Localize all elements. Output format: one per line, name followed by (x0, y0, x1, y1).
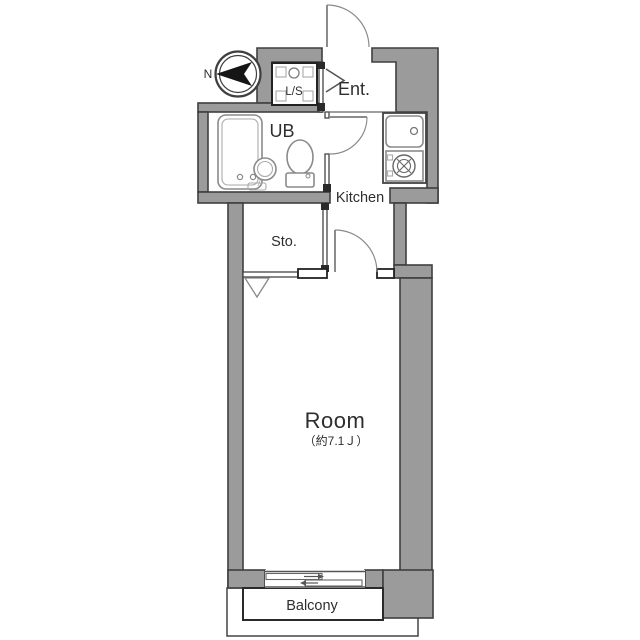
sliding-window-icon (265, 570, 365, 588)
bath-door-arc-icon (330, 117, 367, 154)
stove-icon (386, 151, 423, 181)
compass-north-icon: N (204, 52, 261, 97)
room-label: Room (305, 408, 366, 433)
balcony-area: Balcony (243, 588, 383, 620)
north-label: N (204, 67, 213, 81)
entrance-label: Ent. (338, 79, 370, 99)
entrance-door-arc-icon (327, 5, 369, 47)
floor-plan-page: Balcony (0, 0, 640, 640)
storage-door-triangle-icon (245, 278, 269, 297)
room-size-label: （約7.1Ｊ） (304, 433, 369, 448)
toilet-icon (286, 140, 314, 187)
washing-machine-icon: L/S (272, 63, 317, 105)
balcony-label: Balcony (286, 598, 338, 614)
kitchen-counter (383, 113, 426, 183)
bath-label: UB (269, 121, 294, 141)
floor-plan-svg: Balcony (0, 0, 640, 640)
kitchen-label: Kitchen (336, 190, 384, 206)
room-door-arc-icon (335, 230, 377, 272)
kitchen-sink-icon (386, 116, 423, 147)
storage-label: Sto. (271, 234, 297, 250)
laundry-label: L/S (285, 86, 303, 98)
